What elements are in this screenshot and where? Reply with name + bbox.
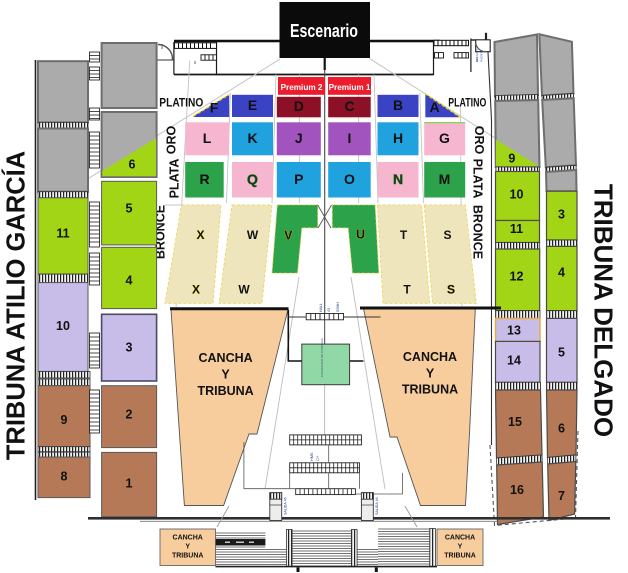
svg-text:PLATA: PLATA (471, 159, 485, 199)
svg-text:G: G (439, 130, 450, 146)
svg-text:9: 9 (508, 152, 515, 166)
svg-text:S: S (447, 283, 455, 297)
svg-text:K: K (247, 130, 257, 146)
svg-text:D: D (294, 98, 304, 114)
svg-text:HMS: HMS (310, 452, 314, 461)
svg-text:PUERTA: PUERTA (480, 50, 484, 62)
svg-text:CANCHA: CANCHA (403, 350, 457, 364)
svg-text:W: W (238, 283, 250, 297)
svg-text:R: R (199, 171, 209, 187)
svg-text:C: C (344, 98, 354, 114)
svg-text:HALL: HALL (319, 303, 323, 312)
svg-text:PLATINO: PLATINO (159, 96, 203, 110)
svg-text:11: 11 (56, 227, 69, 241)
svg-text:Escenario: Escenario (290, 20, 358, 41)
svg-text:P: P (294, 171, 303, 187)
svg-text:14: 14 (507, 354, 521, 368)
svg-text:CANCHA: CANCHA (199, 351, 253, 365)
svg-text:Y: Y (185, 544, 190, 551)
svg-text:3: 3 (558, 208, 565, 222)
svg-text:A: A (429, 99, 439, 115)
svg-text:PLATINO: PLATINO (448, 96, 486, 110)
svg-text:TRIBUNA: TRIBUNA (172, 553, 204, 560)
svg-text:ORO: ORO (165, 125, 179, 154)
svg-text:PLATA: PLATA (168, 159, 182, 199)
svg-text:5: 5 (558, 346, 565, 360)
svg-text:T: T (400, 228, 408, 242)
svg-text:S: S (443, 228, 451, 242)
svg-text:15: 15 (508, 415, 522, 429)
svg-text:CANCHA: CANCHA (173, 535, 203, 542)
svg-text:L: L (203, 130, 212, 146)
svg-text:V: V (284, 229, 293, 243)
svg-text:X: X (196, 228, 204, 242)
svg-text:8: 8 (61, 470, 68, 484)
svg-text:CY: CY (316, 455, 320, 461)
svg-text:13: 13 (507, 324, 521, 338)
svg-text:9: 9 (61, 413, 68, 427)
svg-text:TRIBUNA: TRIBUNA (444, 553, 476, 560)
svg-text:TRIBUNA DELGADO: TRIBUNA DELGADO (589, 184, 619, 437)
svg-text:TRIBUNA ATILIO GARCÍA: TRIBUNA ATILIO GARCÍA (2, 151, 31, 460)
svg-text:4: 4 (558, 266, 565, 280)
svg-text:TRIBUNA: TRIBUNA (197, 384, 253, 398)
svg-text:E: E (248, 97, 257, 113)
svg-text:Premium 2: Premium 2 (281, 83, 323, 92)
svg-text:Y: Y (426, 367, 435, 381)
svg-text:16: 16 (510, 483, 524, 497)
svg-text:6: 6 (129, 158, 136, 172)
svg-text:SALIDA 46: SALIDA 46 (375, 497, 379, 515)
svg-text:U: U (356, 228, 365, 242)
svg-text:Premium 1: Premium 1 (329, 83, 371, 92)
svg-text:CANCHA: CANCHA (445, 535, 475, 542)
svg-text:B: B (393, 97, 403, 113)
svg-text:ORO: ORO (472, 126, 486, 155)
svg-text:Y: Y (221, 368, 230, 382)
svg-text:6: 6 (558, 422, 565, 436)
svg-text:11: 11 (510, 222, 523, 236)
svg-text:Y: Y (458, 544, 463, 551)
svg-text:ac: ac (193, 60, 197, 64)
svg-text:X: X (192, 283, 200, 297)
svg-text:M: M (439, 171, 451, 187)
svg-text:5: 5 (126, 202, 133, 216)
svg-text:acc: acc (160, 44, 164, 49)
svg-text:7: 7 (558, 489, 565, 503)
svg-text:10: 10 (56, 319, 70, 333)
svg-text:1: 1 (126, 477, 133, 491)
svg-text:I: I (348, 130, 352, 146)
svg-text:ESCENARIO DE CONTROL: ESCENARIO DE CONTROL (320, 337, 324, 377)
svg-text:TRIBUNA: TRIBUNA (402, 383, 458, 397)
svg-text:SSHH: SSHH (336, 302, 340, 312)
svg-text:43: 43 (327, 308, 331, 312)
svg-text:T: T (403, 283, 411, 297)
svg-text:4: 4 (126, 274, 133, 288)
svg-text:3: 3 (126, 341, 133, 355)
svg-text:Q: Q (247, 171, 258, 187)
svg-text:W: W (247, 228, 259, 242)
svg-text:12: 12 (510, 270, 524, 284)
svg-text:SALIDA 45: SALIDA 45 (284, 497, 288, 515)
svg-text:J: J (295, 130, 303, 146)
svg-text:10: 10 (510, 188, 524, 202)
svg-text:F: F (210, 100, 219, 116)
svg-text:acc: acc (475, 57, 479, 62)
svg-text:N: N (393, 171, 403, 187)
svg-text:O: O (344, 171, 355, 187)
svg-text:H: H (393, 130, 403, 146)
svg-text:2: 2 (126, 408, 133, 422)
svg-text:BRONCE: BRONCE (471, 205, 485, 259)
